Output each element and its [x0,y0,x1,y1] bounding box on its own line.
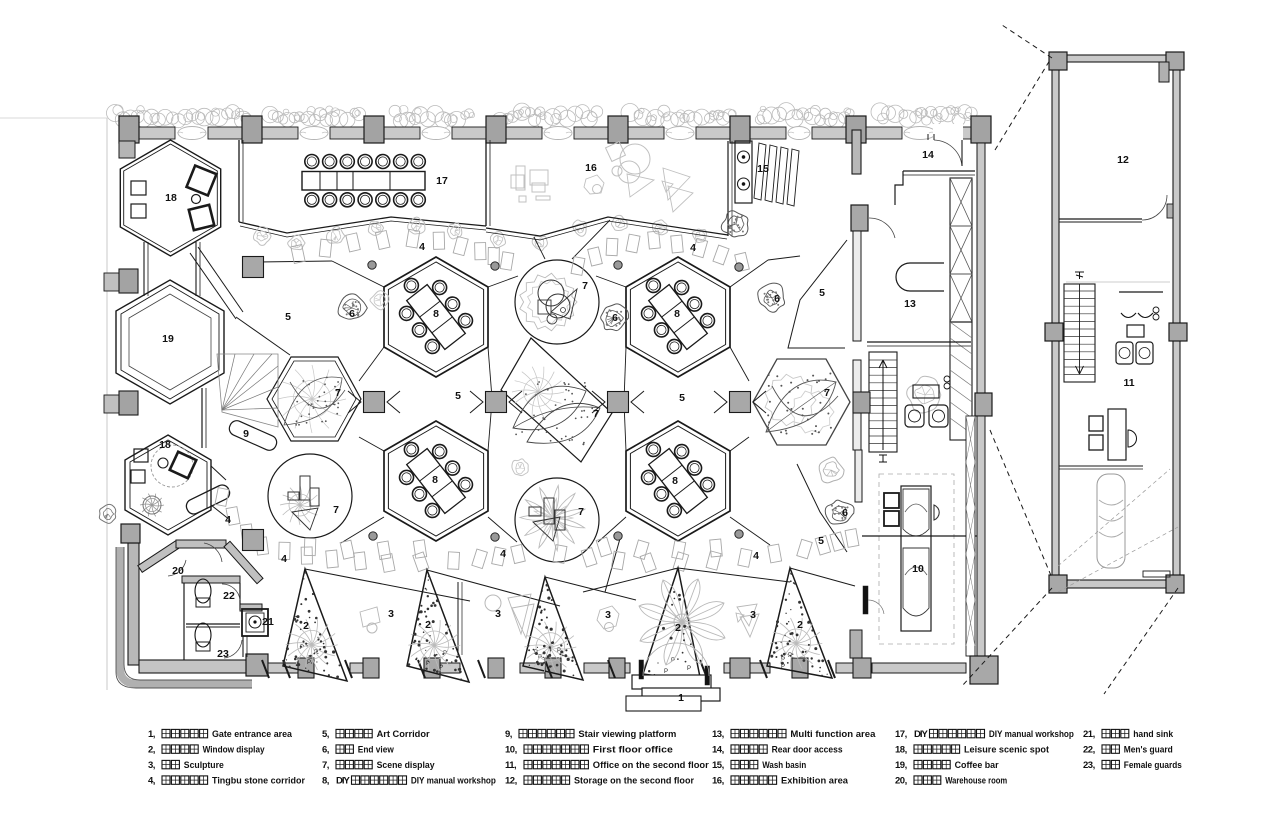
svg-text:17: 17 [436,175,448,187]
svg-text:5: 5 [819,287,825,299]
svg-text:12,: 12, [505,776,517,787]
svg-text:Scene display: Scene display [377,760,436,771]
svg-text:6: 6 [349,308,355,320]
svg-text:7: 7 [578,506,584,518]
svg-text:P: P [687,666,691,672]
svg-text:4: 4 [419,241,425,253]
svg-text:18: 18 [159,439,171,451]
svg-text:11,: 11, [505,760,516,771]
svg-text:Leisure scenic spot: Leisure scenic spot [964,745,1050,756]
svg-text:18: 18 [165,192,177,204]
svg-text:Coffee bar: Coffee bar [955,760,999,771]
svg-text:20: 20 [172,565,184,577]
svg-text:Storage on the second floor: Storage on the second floor [574,776,694,787]
svg-text:7: 7 [582,280,588,292]
svg-text:20,: 20, [895,776,907,787]
svg-text:DIY: DIY [914,729,929,740]
svg-text:5: 5 [285,311,291,323]
svg-text:10,: 10, [505,745,517,756]
svg-text:Wash basin: Wash basin [762,760,806,771]
svg-text:4: 4 [753,550,759,562]
svg-text:6: 6 [774,293,780,305]
svg-text:17,: 17, [895,729,907,740]
svg-text:Exhibition area: Exhibition area [781,776,849,787]
svg-text:8: 8 [432,474,438,486]
svg-text:19,: 19, [895,760,907,771]
svg-text:3: 3 [495,608,501,620]
svg-text:Office on the second floor: Office on the second floor [593,760,709,771]
svg-text:7: 7 [824,387,830,399]
svg-text:18,: 18, [895,745,907,756]
svg-text:P: P [307,660,311,666]
svg-text:3: 3 [605,609,611,621]
svg-text:Tingbu stone corridor: Tingbu stone corridor [212,776,305,787]
svg-text:4,: 4, [148,776,155,787]
svg-text:8,: 8, [322,776,329,787]
svg-text:P: P [781,664,785,670]
svg-text:23: 23 [217,648,229,660]
svg-text:Gate entrance area: Gate entrance area [212,729,293,740]
svg-text:Stair viewing platform: Stair viewing platform [578,729,676,740]
svg-text:14: 14 [922,149,934,161]
svg-text:4: 4 [281,553,287,565]
svg-text:1,: 1, [148,729,155,740]
svg-text:12: 12 [1117,154,1129,166]
svg-text:6,: 6, [322,745,329,756]
svg-text:7: 7 [593,408,599,420]
svg-text:6: 6 [612,312,618,324]
svg-text:8: 8 [672,475,678,487]
svg-text:Window display: Window display [203,745,266,756]
svg-text:3: 3 [750,609,756,621]
svg-text:P: P [664,669,668,675]
svg-text:Female guards: Female guards [1124,760,1182,771]
svg-text:1: 1 [678,692,684,704]
svg-text:10: 10 [912,563,924,575]
svg-text:5,: 5, [322,729,329,740]
svg-text:hand sink: hand sink [1133,729,1174,740]
svg-text:First floor office: First floor office [593,745,673,756]
svg-text:2: 2 [675,622,681,634]
svg-text:2: 2 [425,619,431,631]
svg-text:21: 21 [262,616,274,628]
svg-text:DIY manual workshop: DIY manual workshop [411,776,496,787]
svg-text:22: 22 [223,590,235,602]
svg-text:Men's guard: Men's guard [1124,745,1173,756]
svg-text:5: 5 [679,392,685,404]
svg-text:4: 4 [500,548,506,560]
svg-text:5: 5 [818,535,824,547]
svg-text:8: 8 [433,308,439,320]
svg-text:16,: 16, [712,776,724,787]
svg-text:15: 15 [757,163,769,175]
svg-text:11: 11 [1123,377,1134,389]
svg-text:Sculpture: Sculpture [184,760,224,771]
svg-text:4: 4 [225,514,231,526]
svg-text:23,: 23, [1083,760,1095,771]
svg-text:19: 19 [162,333,174,345]
svg-text:7: 7 [335,387,341,399]
svg-text:Multi function area: Multi function area [790,729,876,740]
svg-text:7: 7 [333,504,339,516]
svg-text:22,: 22, [1083,745,1095,756]
svg-text:14,: 14, [712,745,724,756]
svg-text:2: 2 [797,619,803,631]
svg-text:21,: 21, [1083,729,1095,740]
svg-text:End view: End view [358,745,395,756]
svg-text:8: 8 [674,308,680,320]
svg-text:9,: 9, [505,729,512,740]
svg-text:2: 2 [303,620,309,632]
svg-text:3,: 3, [148,760,155,771]
svg-text:6: 6 [842,507,848,519]
svg-text:7,: 7, [322,760,329,771]
svg-text:DIY: DIY [336,776,351,787]
svg-text:5: 5 [455,390,461,402]
svg-text:15,: 15, [712,760,724,771]
svg-text:4: 4 [690,242,696,254]
svg-text:DIY manual workshop: DIY manual workshop [989,729,1074,740]
svg-text:13,: 13, [712,729,724,740]
svg-text:2,: 2, [148,745,155,756]
svg-text:Art Corridor: Art Corridor [377,729,430,740]
svg-text:3: 3 [388,608,394,620]
svg-text:9: 9 [243,428,249,440]
svg-text:Warehouse room: Warehouse room [945,776,1007,787]
svg-text:16: 16 [585,162,597,174]
svg-text:Rear door access: Rear door access [772,745,843,756]
svg-text:13: 13 [904,298,916,310]
